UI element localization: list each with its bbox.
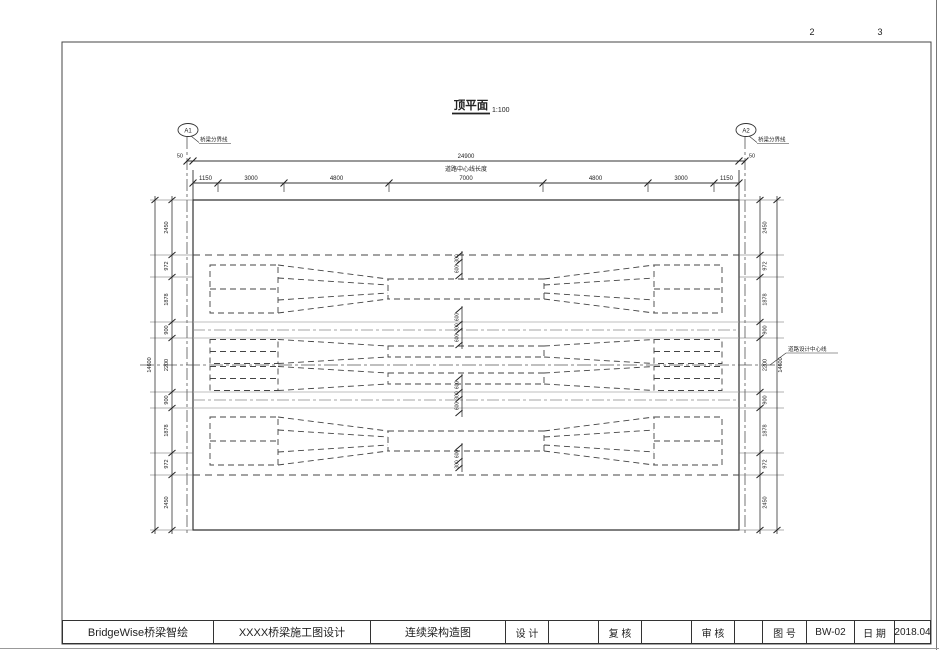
plan-view-drawing: 2 3 顶平面 1:100 A1 桥梁分界线 A2 桥梁分界线 50 50 24… bbox=[0, 0, 939, 650]
side-dim: 972 bbox=[164, 261, 170, 270]
axis-a2-leader-text: 桥梁分界线 bbox=[758, 136, 786, 144]
seg-1150-r: 1150 bbox=[720, 176, 734, 182]
side-dim: 900 bbox=[763, 395, 769, 404]
side-dim: 972 bbox=[164, 459, 170, 468]
title-block-check-label: 复 核 bbox=[599, 621, 642, 643]
total-length-value: 24900 bbox=[458, 154, 475, 160]
mid-dim: 600 bbox=[455, 402, 461, 411]
seg-3000-l: 3000 bbox=[244, 176, 258, 182]
deck-outline bbox=[193, 170, 739, 530]
dim-total-length: 50 50 24900 道路中心线长度 bbox=[177, 154, 755, 174]
mid-dim: 600 bbox=[455, 381, 461, 390]
side-dim: 2200 bbox=[763, 359, 769, 371]
road-centerline-label: 道路设计中心线 bbox=[788, 345, 827, 353]
bearing-offset-right: 50 bbox=[749, 154, 755, 160]
side-dim: 1878 bbox=[763, 293, 769, 305]
beam-group-1 bbox=[210, 265, 722, 313]
side-dim: 2450 bbox=[164, 221, 170, 233]
side-dim: 2450 bbox=[164, 496, 170, 508]
page-number-3: 3 bbox=[877, 27, 882, 37]
axis-a1-label: A1 bbox=[184, 129, 192, 135]
title-block-figno-value: BW-02 bbox=[807, 621, 855, 643]
title-block-check-value bbox=[642, 621, 692, 643]
mid-dim: 600 bbox=[455, 313, 461, 322]
mid-dim: 300 bbox=[455, 391, 461, 400]
side-dim: 2450 bbox=[763, 496, 769, 508]
mid-dim: 300 bbox=[455, 323, 461, 332]
page-numbers: 2 3 bbox=[809, 27, 882, 37]
seg-4800-l: 4800 bbox=[330, 176, 344, 182]
title-block-design-value bbox=[549, 621, 599, 643]
side-dim: 2450 bbox=[763, 221, 769, 233]
seg-4800-r: 4800 bbox=[589, 176, 603, 182]
mid-dim: 300 bbox=[455, 254, 461, 263]
seg-3000-r: 3000 bbox=[674, 176, 688, 182]
midspan-dim-stacks: 300 600 600 300 600 600 300 600 600 300 bbox=[455, 251, 463, 472]
title-block-drawing-title: 连续梁构造图 bbox=[371, 621, 506, 643]
side-dim: 1878 bbox=[763, 424, 769, 436]
road-centerline: 道路设计中心线 bbox=[140, 345, 838, 365]
mid-dim: 600 bbox=[455, 265, 461, 274]
side-dim: 972 bbox=[763, 261, 769, 270]
beam-group-3 bbox=[210, 367, 722, 391]
side-dim: 1878 bbox=[164, 293, 170, 305]
side-dim: 900 bbox=[763, 325, 769, 334]
side-dim: 1878 bbox=[164, 424, 170, 436]
side-dim: 972 bbox=[763, 459, 769, 468]
mid-dim: 600 bbox=[455, 334, 461, 343]
axis-a1-leader-text: 桥梁分界线 bbox=[200, 136, 228, 144]
title-block-design-label: 设 计 bbox=[506, 621, 549, 643]
title-block-audit-value bbox=[735, 621, 763, 643]
title-block-date-label: 日 期 bbox=[855, 621, 895, 643]
beam-group-4 bbox=[210, 417, 722, 465]
title-block-audit-label: 审 核 bbox=[692, 621, 735, 643]
seg-1150-l: 1150 bbox=[199, 176, 213, 182]
side-dim: 2200 bbox=[164, 359, 170, 371]
mid-dim: 600 bbox=[455, 450, 461, 459]
dim-top-segments: 1150 3000 4800 7000 4800 3000 1150 bbox=[190, 176, 743, 192]
total-length-caption: 道路中心线长度 bbox=[445, 165, 487, 173]
title-block-project: XXXX桥梁施工图设计 bbox=[214, 621, 371, 643]
title-block-date-value: 2018.04 bbox=[895, 621, 930, 643]
side-dim: 900 bbox=[164, 395, 170, 404]
view-title: 顶平面 1:100 bbox=[452, 98, 510, 114]
view-title-text: 顶平面 bbox=[454, 98, 489, 112]
mid-dim: 300 bbox=[455, 460, 461, 469]
axis-balloon-a1: A1 桥梁分界线 bbox=[178, 124, 231, 534]
title-block: BridgeWise桥梁智绘 XXXX桥梁施工图设计 连续梁构造图 设 计 复 … bbox=[62, 620, 931, 644]
axis-a2-label: A2 bbox=[742, 129, 750, 135]
beam-group-2 bbox=[210, 340, 722, 364]
sheet-frame bbox=[0, 0, 939, 650]
page-number-2: 2 bbox=[809, 27, 814, 37]
view-scale: 1:100 bbox=[492, 107, 510, 114]
title-block-company: BridgeWise桥梁智绘 bbox=[63, 621, 214, 643]
bearing-offset-left: 50 bbox=[177, 154, 183, 160]
side-total-right: 14600 bbox=[778, 357, 784, 372]
side-dim: 900 bbox=[164, 325, 170, 334]
seg-7000: 7000 bbox=[459, 176, 473, 182]
drawing-sheet: { "sheet": { "page_numbers": ["2", "3"] … bbox=[0, 0, 939, 650]
title-block-figno-label: 图 号 bbox=[763, 621, 807, 643]
side-total-left: 14600 bbox=[147, 357, 153, 372]
